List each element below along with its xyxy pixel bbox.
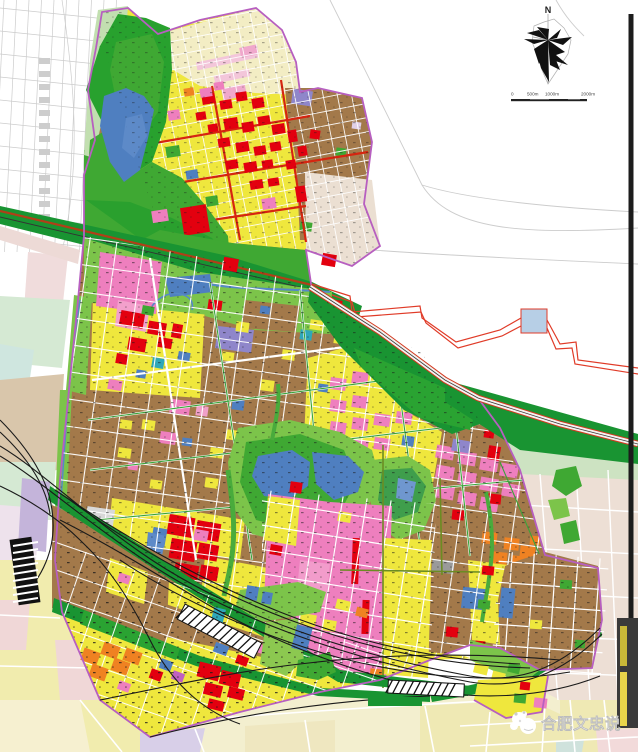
svg-text:2000m: 2000m [581,92,595,97]
svg-text:0: 0 [511,92,514,97]
svg-text:N: N [545,5,552,15]
svg-text:合肥文忠说: 合肥文忠说 [541,714,621,733]
svg-text:500m: 500m [527,92,539,97]
svg-text:1000m: 1000m [545,92,559,97]
